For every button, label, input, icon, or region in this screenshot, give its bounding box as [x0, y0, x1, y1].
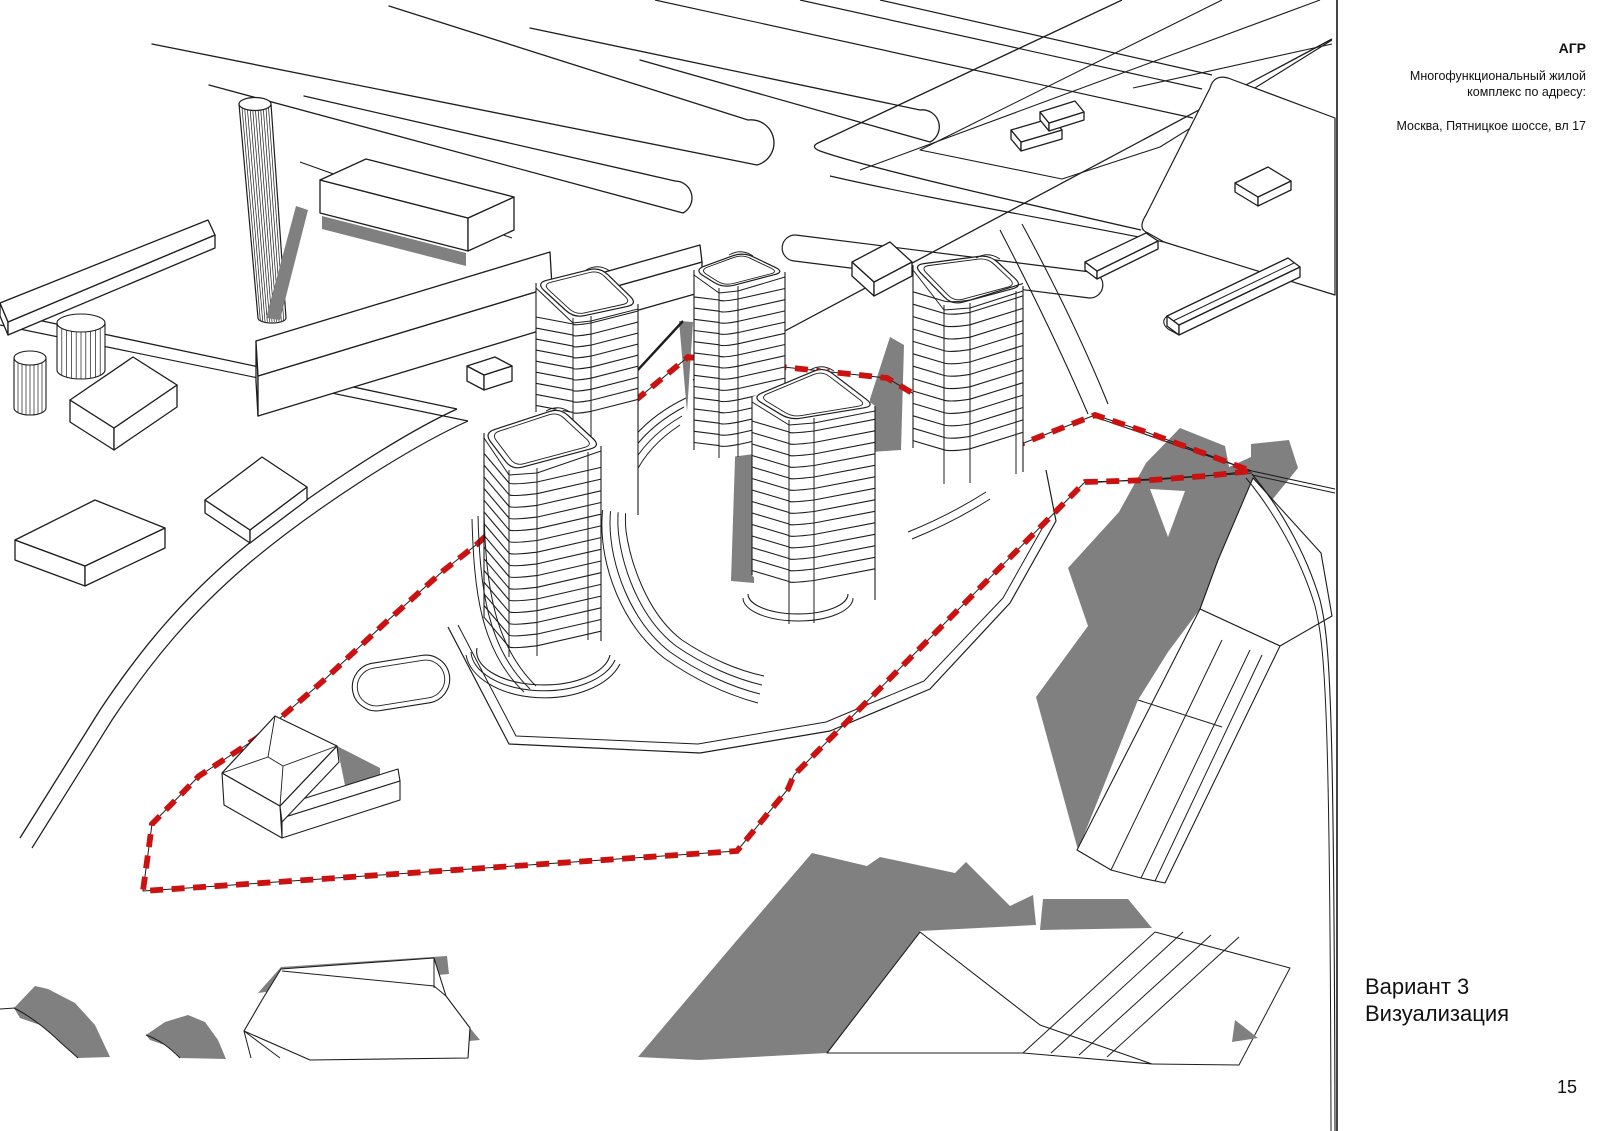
svg-text:АГР: АГР	[1559, 40, 1586, 56]
svg-text:Вариант 3: Вариант 3	[1365, 974, 1469, 999]
svg-text:15: 15	[1557, 1077, 1577, 1097]
svg-text:комплекс по адресу:: комплекс по адресу:	[1467, 85, 1586, 99]
svg-text:Многофункциональный жилой: Многофункциональный жилой	[1410, 69, 1586, 83]
svg-text:Визуализация: Визуализация	[1365, 1001, 1509, 1026]
svg-text:Москва, Пятницкое шоссе, вл 17: Москва, Пятницкое шоссе, вл 17	[1396, 119, 1586, 133]
